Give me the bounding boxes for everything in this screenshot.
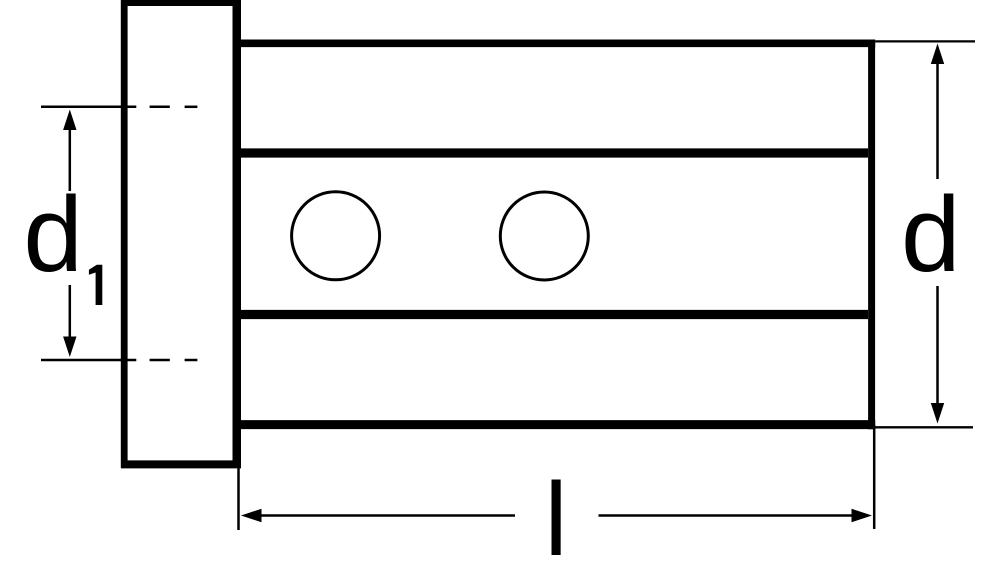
svg-text:d: d xyxy=(901,174,961,294)
svg-text:d: d xyxy=(23,174,83,294)
svg-text:l: l xyxy=(545,462,568,578)
